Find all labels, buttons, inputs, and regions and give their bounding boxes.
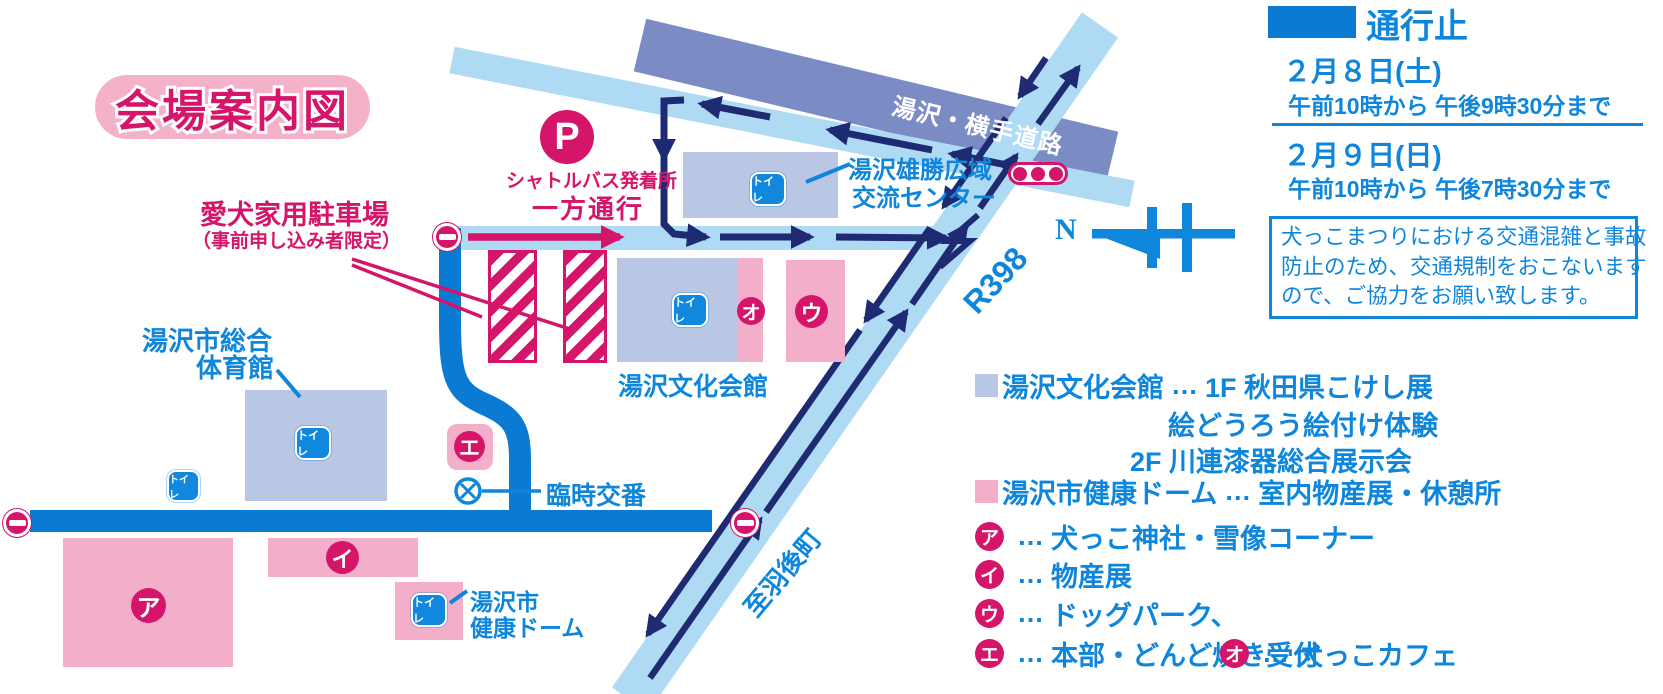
toilet-label: トイレ [413, 594, 445, 626]
bunka-desc-2: 絵どうろう絵付け体験 [1168, 404, 1438, 443]
closure-divider [1272, 123, 1643, 126]
dome-label-2: 健康ドーム [470, 609, 584, 643]
bunka-swatch [975, 374, 998, 397]
marker-e-label: エ [459, 432, 480, 462]
legend-sep-e: … [1017, 638, 1044, 669]
legend-item-i: イ … 物産展 [975, 555, 1132, 594]
legend-desc-i: 物産展 [1051, 555, 1132, 594]
closure-time-2: 午前10時から 午後7時30分まで [1288, 170, 1611, 204]
police-box-label: 臨時交番 [546, 476, 646, 512]
police-box-icon [456, 479, 541, 503]
one-way-label: 一方通行 [532, 189, 644, 226]
marker-a: ア [131, 588, 166, 623]
legend-item-o: オ … 犬っこカフェ [1220, 634, 1458, 673]
toilet-label: トイレ [169, 471, 198, 501]
bunka-kaikan-label: 湯沢文化会館 [618, 367, 768, 403]
gym-label-2: 体育館 [196, 348, 274, 385]
dome-swatch [975, 480, 998, 503]
koryu-center-label-2: 交流センター [852, 178, 996, 213]
bunka-desc-1: 1F 秋田県こけし展 [1205, 366, 1433, 405]
closure-date-1: ２月８日(土) [1283, 50, 1442, 90]
legend-sep-a: … [1017, 521, 1044, 552]
legend-badge-i: イ [975, 560, 1004, 589]
map-title: 会場案内図 [95, 75, 370, 139]
closure-date-2: ２月９日(日) [1283, 134, 1442, 174]
legend-sep-u: … [1017, 598, 1044, 629]
toilet-label: トイレ [297, 427, 329, 459]
toilet-icon-gym: トイレ [295, 426, 331, 460]
dome-name: 湯沢市健康ドーム [1002, 472, 1217, 511]
dog-owner-parking-2 [563, 250, 607, 363]
compass-n-label: N [1055, 213, 1077, 247]
toilet-icon-street: トイレ [167, 470, 200, 502]
no-entry-icon-closed-road-east [731, 509, 759, 537]
notice-line-3: ので、ご協力をお願い致します。 [1281, 282, 1626, 312]
dog-owner-parking-1 [488, 250, 537, 363]
legend-desc-o: 犬っこカフェ [1296, 634, 1458, 673]
parking-p-icon: P [540, 110, 594, 164]
marker-o-label: オ [741, 298, 760, 325]
marker-a-label: ア [137, 588, 161, 623]
bunka-sep: … [1171, 370, 1198, 401]
toilet-label: トイレ [752, 173, 784, 205]
marker-u: ウ [795, 295, 828, 328]
marker-i-label: イ [331, 542, 353, 574]
traffic-signal-icon [1008, 162, 1068, 185]
toilet-icon-dome: トイレ [411, 593, 447, 627]
no-entry-icon-west-street [433, 223, 461, 251]
map-title-label: 会場案内図 [115, 75, 350, 139]
legend-badge-a: ア [975, 522, 1004, 551]
legend-item-a: ア … 犬っこ神社・雪像コーナー [975, 517, 1375, 556]
legend-badge-u: ウ [975, 599, 1004, 628]
bunka-name: 湯沢文化会館 [1002, 366, 1164, 405]
toilet-icon-koryu: トイレ [750, 172, 786, 206]
marker-i: イ [326, 541, 359, 574]
center-street [453, 226, 945, 250]
legend-sep-o: … [1262, 638, 1289, 669]
legend-desc-u: ドッグパーク、 [1051, 594, 1238, 633]
legend-dome-row: 湯沢市健康ドーム … 室内物産展・休憩所 [975, 472, 1501, 511]
road-break-zigzag [940, 215, 978, 267]
closure-title: 通行止 [1366, 0, 1468, 48]
notice-line-1: 犬っこまつりにおける交通混雑と事故 [1281, 223, 1626, 253]
dome-desc: 室内物産展・休憩所 [1258, 472, 1501, 511]
no-entry-icon-closed-road-west [3, 509, 31, 537]
toilet-label: トイレ [674, 294, 706, 326]
closure-swatch [1268, 6, 1356, 38]
notice-box: 犬っこまつりにおける交通混雑と事故 防止のため、交通規制をおこないます ので、ご… [1269, 216, 1638, 319]
marker-o: オ [737, 297, 765, 325]
legend-badge-e: エ [975, 639, 1004, 668]
legend-item-u: ウ … ドッグパーク、 [975, 594, 1238, 633]
parking-sub-label: （事前申し込み者限定） [192, 226, 401, 253]
toilet-icon-bunka: トイレ [672, 293, 708, 327]
compass-arrow-icon [1092, 203, 1235, 272]
marker-u-label: ウ [800, 296, 822, 328]
marker-e: エ [454, 431, 485, 462]
parking-p-label: P [554, 116, 579, 159]
legend-bunka-row: 湯沢文化会館 … 1F 秋田県こけし展 [975, 366, 1433, 405]
closure-time-1: 午前10時から 午後9時30分まで [1288, 87, 1611, 121]
notice-line-2: 防止のため、交通規制をおこないます [1281, 253, 1626, 283]
venue-map: トイレ トイレ トイレ トイレ トイレ ア イ ウ オ エ 会場案内図 愛犬家用… [0, 0, 1663, 694]
legend-desc-a: 犬っこ神社・雪像コーナー [1051, 517, 1375, 556]
dome-sep: … [1224, 476, 1251, 507]
legend-sep-i: … [1017, 559, 1044, 590]
legend-badge-o: オ [1220, 639, 1249, 668]
r398-label: R398 [956, 240, 1035, 321]
